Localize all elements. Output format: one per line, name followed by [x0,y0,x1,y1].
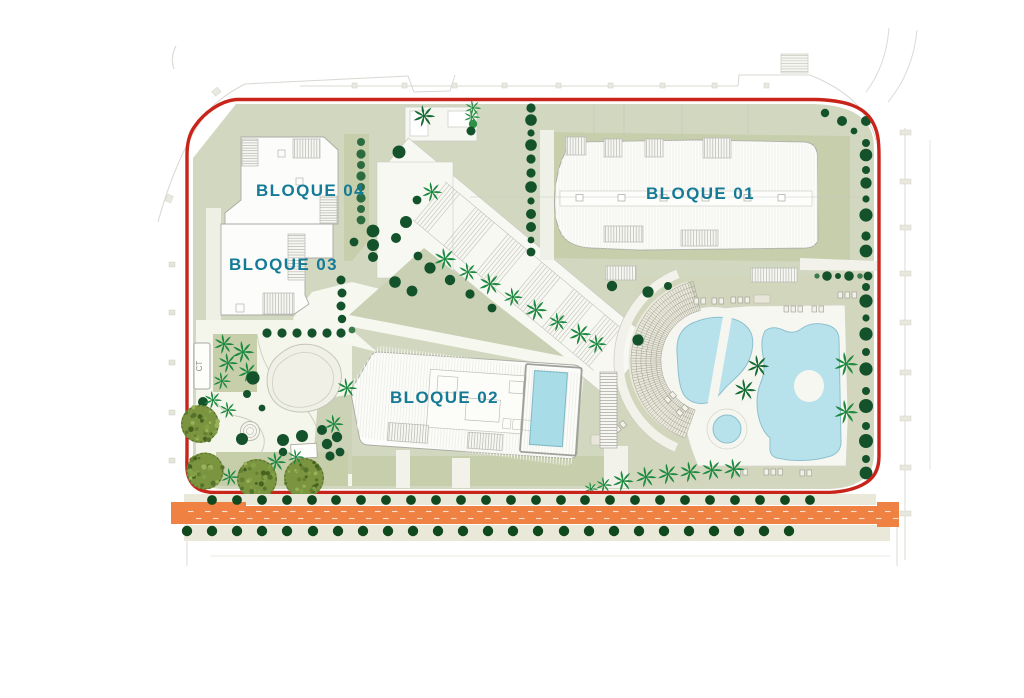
svg-text:BLOQUE 01: BLOQUE 01 [646,184,755,203]
svg-text:BLOQUE 03: BLOQUE 03 [229,255,338,274]
svg-text:BLOQUE 04: BLOQUE 04 [256,181,365,200]
svg-text:CT: CT [195,361,204,372]
svg-text:BLOQUE 02: BLOQUE 02 [390,388,499,407]
